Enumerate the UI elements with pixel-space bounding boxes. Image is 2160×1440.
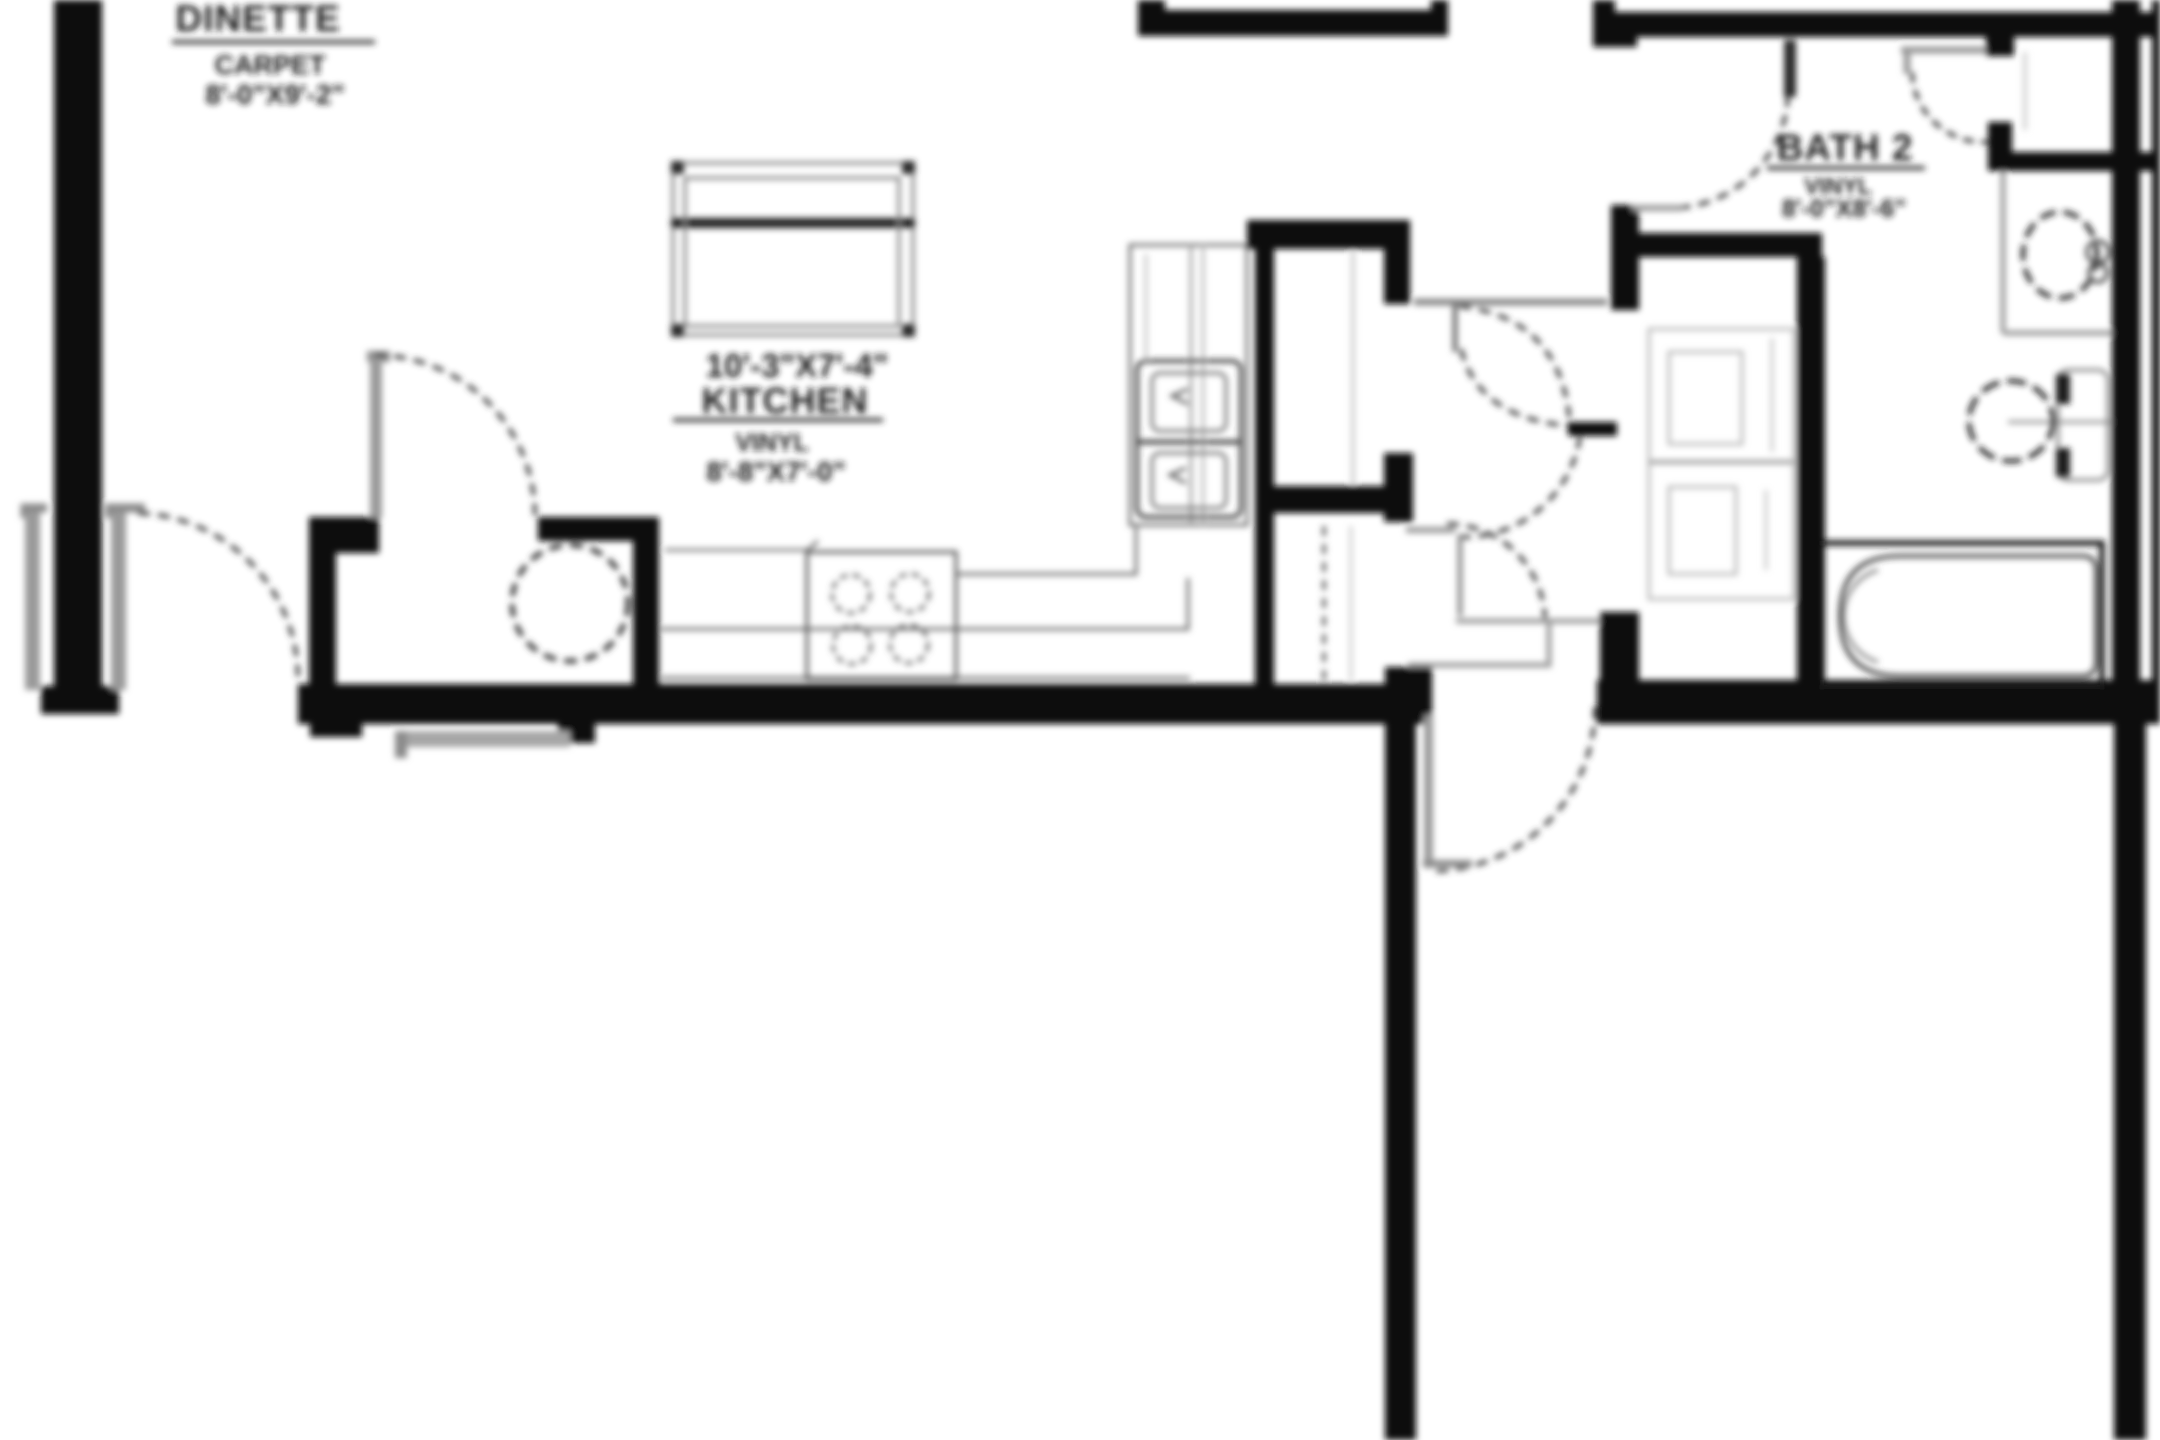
svg-text:KITCHEN: KITCHEN xyxy=(702,380,869,421)
svg-text:8'-8"X7'-0": 8'-8"X7'-0" xyxy=(706,456,845,487)
svg-text:DINETTE: DINETTE xyxy=(175,0,340,39)
svg-text:CARPET: CARPET xyxy=(214,50,326,80)
svg-text:10'-3"X7'-4": 10'-3"X7'-4" xyxy=(706,347,889,384)
svg-text:VINYL: VINYL xyxy=(735,429,809,457)
svg-text:BATH 2: BATH 2 xyxy=(1777,127,1914,168)
svg-text:8'-0"X8'-6": 8'-0"X8'-6" xyxy=(1782,195,1907,223)
svg-text:8'-0"X9'-2": 8'-0"X9'-2" xyxy=(205,79,344,110)
